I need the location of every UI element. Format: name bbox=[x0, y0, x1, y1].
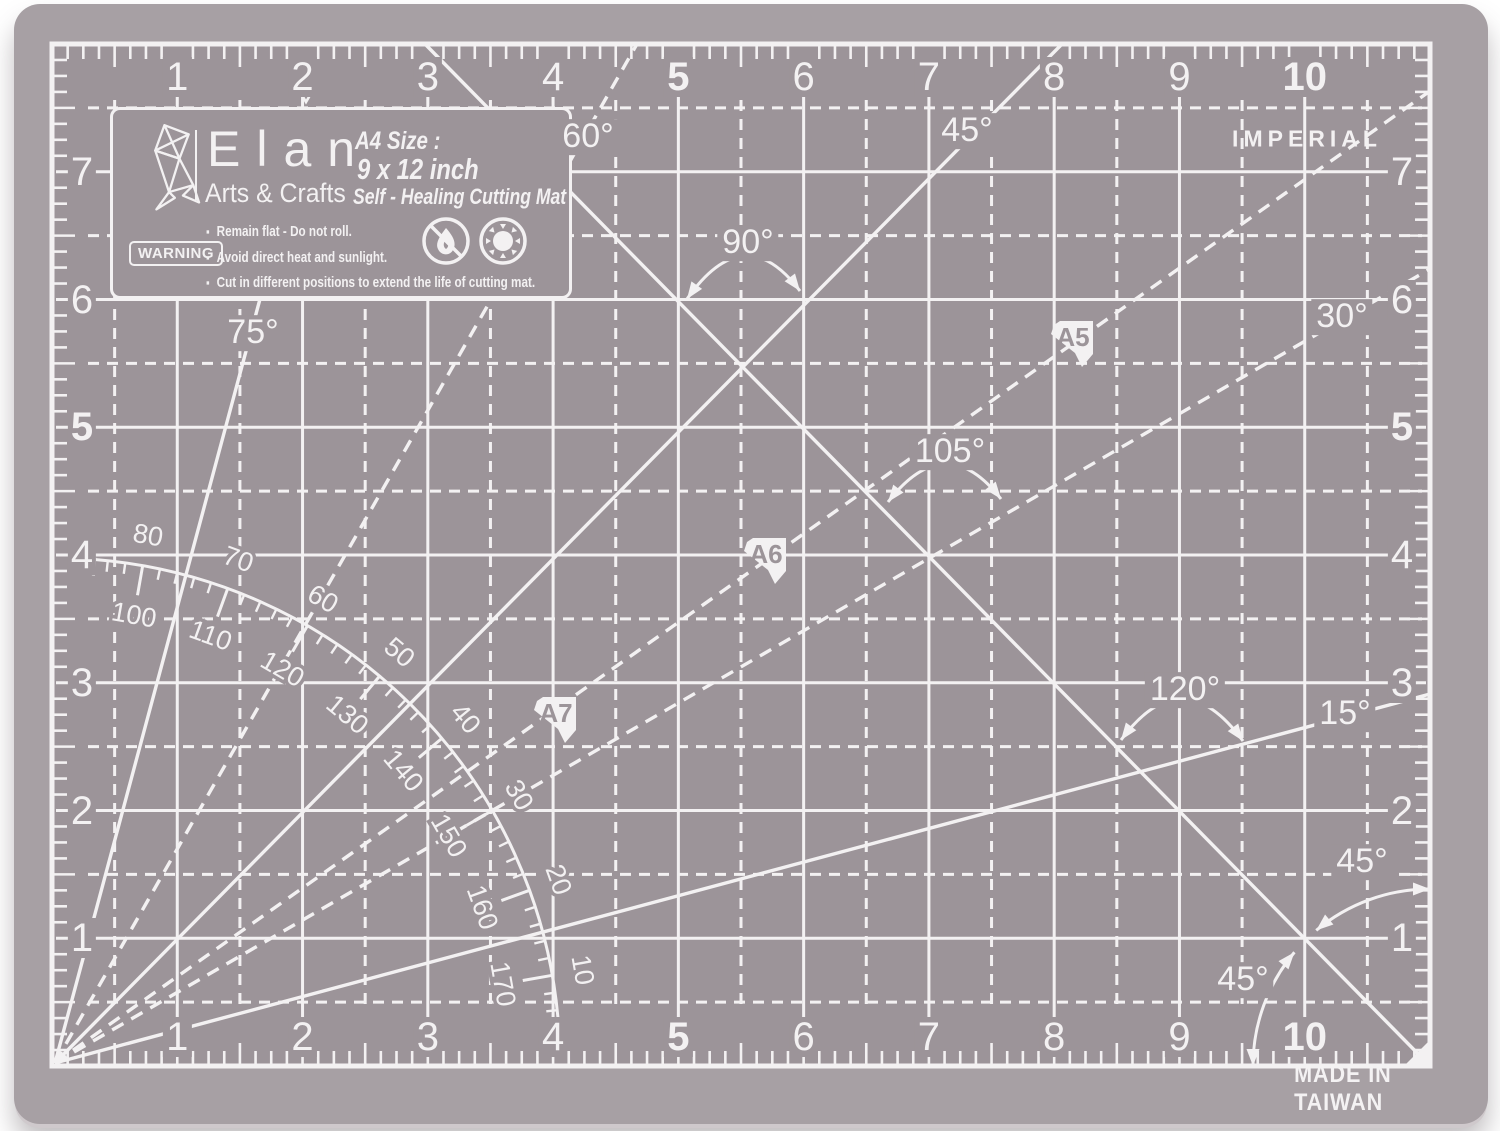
ruler-number-top: 1 bbox=[163, 57, 191, 97]
sun-ray bbox=[509, 247, 517, 255]
units-label: IMPERIAL bbox=[1232, 126, 1382, 153]
text-overlay: Elan Arts & Crafts A4 Size : 9 x 12 inch… bbox=[0, 0, 1500, 1131]
ruler-number-right: 5 bbox=[1388, 407, 1416, 447]
logo-panel: Elan Arts & Crafts A4 Size : 9 x 12 inch… bbox=[110, 107, 572, 299]
product-name: Self - Healing Cutting Mat bbox=[353, 184, 566, 210]
ruler-number-left: 3 bbox=[68, 663, 96, 703]
ruler-number-bottom: 5 bbox=[664, 1017, 692, 1057]
ruler-number-bottom: 9 bbox=[1165, 1017, 1193, 1057]
angle-label: 105° bbox=[910, 434, 990, 470]
logo-divider bbox=[195, 130, 197, 200]
ruler-number-left: 7 bbox=[68, 152, 96, 192]
ruler-number-bottom: 3 bbox=[414, 1017, 442, 1057]
ruler-number-top: 3 bbox=[414, 57, 442, 97]
ruler-number-bottom: 4 bbox=[539, 1017, 567, 1057]
ruler-number-right: 7 bbox=[1388, 152, 1416, 192]
sun-ray bbox=[515, 238, 520, 244]
angle-label: 15° bbox=[1314, 696, 1375, 732]
ruler-number-right: 1 bbox=[1388, 918, 1416, 958]
ruler-number-bottom: 2 bbox=[288, 1017, 316, 1057]
ruler-number-bottom: 1 bbox=[163, 1017, 191, 1057]
sun-icon bbox=[477, 215, 529, 267]
ruler-number-top: 2 bbox=[288, 57, 316, 97]
ruler-number-right: 3 bbox=[1388, 663, 1416, 703]
sun-ray bbox=[489, 247, 497, 255]
angle-label: 75° bbox=[222, 315, 283, 351]
ruler-number-right: 2 bbox=[1388, 791, 1416, 831]
ruler-number-right: 6 bbox=[1388, 280, 1416, 320]
brand-name: Elan bbox=[207, 124, 371, 174]
sun-ray bbox=[509, 227, 517, 235]
angle-label: 30° bbox=[1311, 299, 1372, 335]
no-fire-icon bbox=[420, 215, 472, 267]
origami-fox-icon bbox=[141, 124, 211, 214]
angle-label: 45° bbox=[936, 113, 997, 149]
ruler-number-bottom: 6 bbox=[790, 1017, 818, 1057]
ruler-number-top: 5 bbox=[664, 57, 692, 97]
angle-label: 45° bbox=[1331, 844, 1392, 880]
angle-label: 60° bbox=[557, 119, 618, 155]
ruler-number-top: 7 bbox=[915, 57, 943, 97]
angle-label: 90° bbox=[717, 225, 778, 261]
size-title: A4 Size : bbox=[355, 127, 440, 156]
angle-label: 120° bbox=[1145, 672, 1225, 708]
ruler-number-top: 6 bbox=[790, 57, 818, 97]
ruler-number-top: 4 bbox=[539, 57, 567, 97]
size-value: 9 x 12 inch bbox=[357, 154, 479, 187]
sun-ray bbox=[489, 227, 497, 235]
sun-ray bbox=[500, 253, 506, 258]
made-in-label: MADE IN TAIWAN bbox=[1294, 1061, 1422, 1117]
ruler-number-bottom: 7 bbox=[915, 1017, 943, 1057]
ruler-number-right: 4 bbox=[1388, 535, 1416, 575]
cutting-mat-photo: 8070605040302010100110120130140150160170… bbox=[0, 0, 1500, 1131]
ruler-number-bottom: 8 bbox=[1040, 1017, 1068, 1057]
ruler-number-left: 2 bbox=[68, 791, 96, 831]
ruler-number-left: 4 bbox=[68, 535, 96, 575]
ruler-number-left: 6 bbox=[68, 280, 96, 320]
brand-tagline: Arts & Crafts bbox=[205, 178, 346, 209]
sun-ray bbox=[486, 238, 491, 244]
angle-label: 45° bbox=[1212, 962, 1273, 998]
ruler-number-top: 8 bbox=[1040, 57, 1068, 97]
warning-item: Cut in different positions to extend the… bbox=[206, 275, 535, 292]
ruler-number-top: 10 bbox=[1279, 57, 1330, 97]
ruler-number-left: 5 bbox=[68, 407, 96, 447]
ruler-number-bottom: 10 bbox=[1279, 1017, 1330, 1057]
ruler-number-left: 1 bbox=[68, 918, 96, 958]
ruler-number-top: 9 bbox=[1165, 57, 1193, 97]
